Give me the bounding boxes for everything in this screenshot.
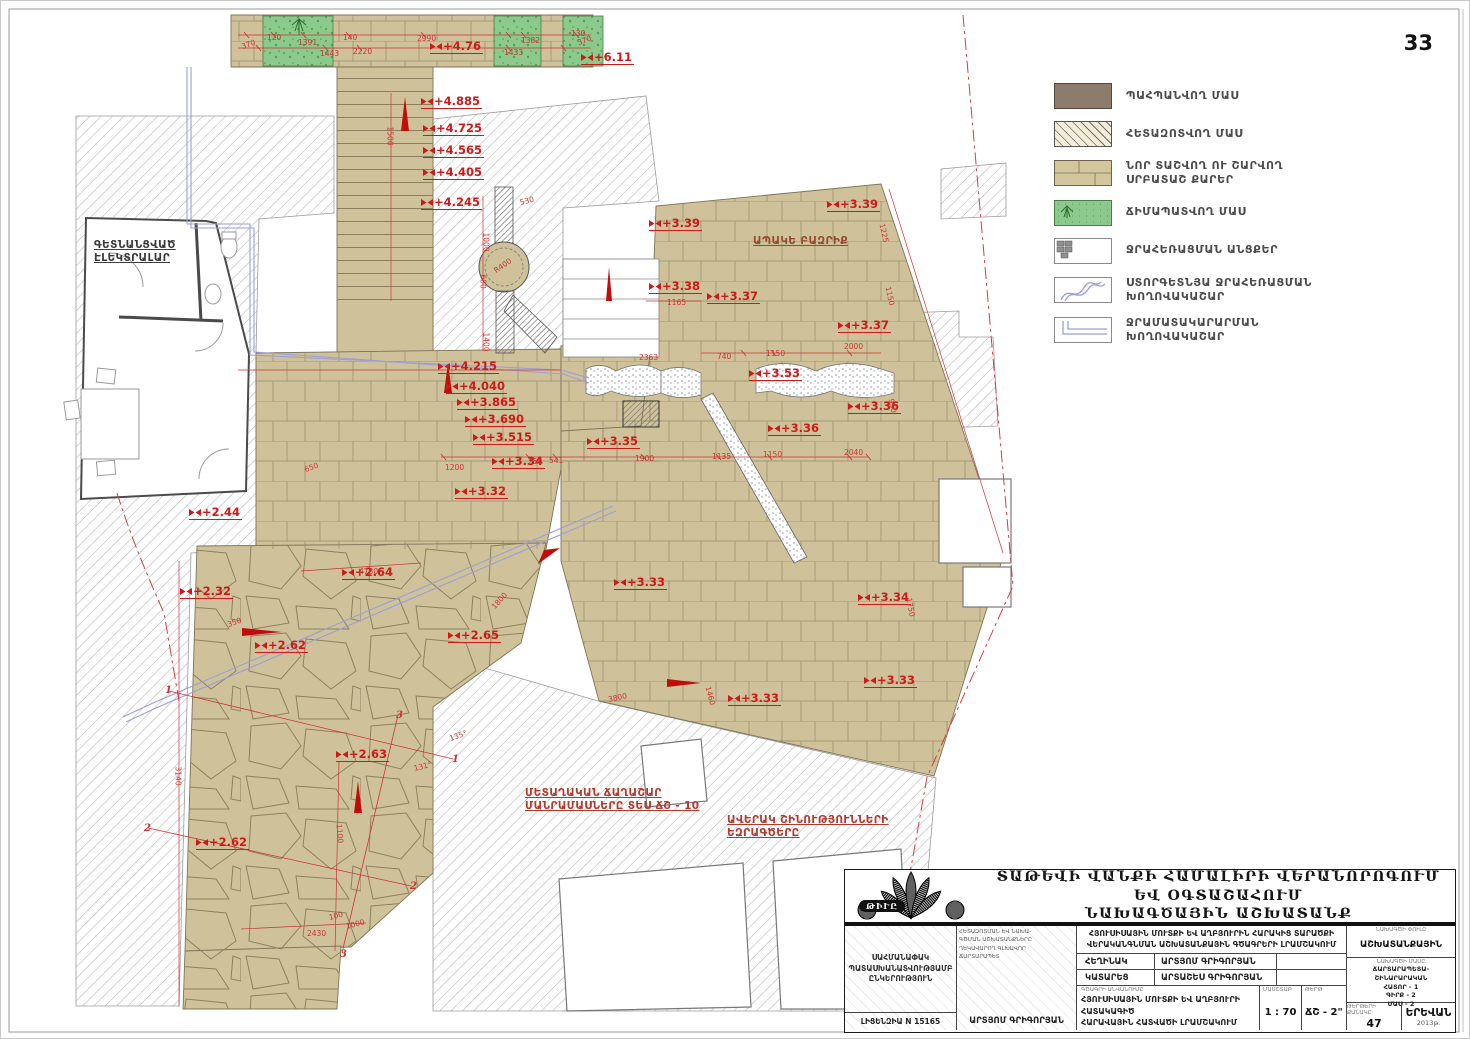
sheet-label: ԹԵՐԹ (1302, 986, 1346, 994)
legend-label: ՋՐԱՄԱՏԱԿԱՐԱՐՄԱՆ ԽՈՂՈՎԱԿԱՇԱՐ (1126, 316, 1259, 345)
legend-item-preserved-part: ՊԱՀՊԱՆՎՈՂ ՄԱՍ (1054, 83, 1384, 109)
logo-text: ԹԻՒԸ (859, 900, 905, 912)
chief-name: ԱՐՏՅՈՄ ԳՐԻԳՈՐՅԱՆ (959, 1016, 1074, 1028)
legend-item-underground-drainage-pipeline: ՍՏՈՐԳԵՏՆՅԱ ՋՐԱՀԵՌԱՑՄԱՆ ԽՈՂՈՎԱԿԱՇԱՐ (1054, 276, 1384, 305)
stairs-middle (563, 259, 659, 357)
sink-fixture (205, 284, 221, 304)
sheets-count: 47 (1366, 1016, 1381, 1030)
org-name: ՍԱՀՄԱՆԱՓԱԿ ՊԱՏԱՍԽԱՆԱՏՎՈՒԹՅԱՄԲ ԸՆԿԵՐՈՒԹՅՈ… (845, 926, 956, 1012)
performed-label: ԿԱՏԱՐԵՑ (1077, 970, 1155, 985)
sheet-code: ՃՇ - 2" (1302, 994, 1346, 1030)
chief-architect-cell: ՀԵՏԱԶՈՏՄԱՆ ԵՎ ՆԱԽԱ- ԳԾՄԱՆ ԱՇԽԱՏԱՆՔՆԵՐԸ Ղ… (957, 926, 1077, 1030)
chief-note: ՀԵՏԱԶՈՏՄԱՆ ԵՎ ՆԱԽԱ- ԳԾՄԱՆ ԱՇԽԱՏԱՆՔՆԵՐԸ Ղ… (959, 928, 1074, 961)
legend-label: ՍՏՈՐԳԵՏՆՅԱ ՋՐԱՀԵՌԱՑՄԱՆ ԽՈՂՈՎԱԿԱՇԱՐ (1126, 276, 1312, 305)
drainage-openings-swatch-icon (1054, 238, 1112, 264)
project-header: ՀՅՈՒՍԻՍԱՅԻՆ ՄՈՒՏՔԻ ԵՎ ԱՂԲՅՈՒՐԻՆ ՀԱՐԱԿԻՑ … (1077, 926, 1346, 954)
author-name: ԱՐՏՅՈՄ ԳՐԻԳՈՐՅԱՆ (1155, 954, 1277, 969)
scale-label: ՄԱՍՇՏԱԲ (1260, 986, 1301, 994)
legend-label: ՋՐԱՀԵՌԱՑՄԱՆ ԱՆՑՔԵՐ (1126, 243, 1278, 257)
license-number: ԼԻՑԵՆԶԻԱ N 15165 (845, 1012, 956, 1030)
table (81, 389, 139, 459)
drainage-opening (623, 401, 659, 427)
stage-value: ԱՇԽԱՏԱՆՔԱՅԻՆ (1360, 933, 1442, 956)
new-hewn-stones-swatch-icon (1054, 160, 1112, 186)
drawing-info-cell: ՀՅՈՒՍԻՍԱՅԻՆ ՄՈՒՏՔԻ ԵՎ ԱՂԲՅՈՒՐԻՆ ՀԱՐԱԿԻՑ … (1077, 926, 1347, 1030)
drawing-title: ՀՅՈՒՍԻՍԱՅԻՆ ՄՈՒՏՔԻ ԵՎ ԱՂԲՅՈՒՐԻ ՀԱՏԱԿԱԳԻԾ… (1081, 994, 1255, 1029)
legend-label: ՊԱՀՊԱՆՎՈՂ ՄԱՍ (1126, 89, 1239, 103)
scale-value: 1 : 70 (1260, 994, 1301, 1030)
org-cell: ՍԱՀՄԱՆԱՓԱԿ ՊԱՏԱՍԽԱՆԱՏՎՈՒԹՅԱՄԲ ԸՆԿԵՐՈՒԹՅՈ… (845, 926, 957, 1030)
performed-name: ԱՐՏԱՇԵՍ ԳՐԻԳՈՐՅԱՆ (1155, 970, 1277, 985)
drawing-title-label: ԳԾԱԳՐԻ ԱՆՎԱՆՈՒՄԸ (1081, 987, 1255, 993)
legend-item-water-supply-pipeline: ՋՐԱՄԱՏԱԿԱՐԱՐՄԱՆ ԽՈՂՈՎԱԿԱՇԱՐ (1054, 316, 1384, 345)
title-block: ԹԻՒԸ ՏԱԹԵՎԻ ՎԱՆՔԻ ՀԱՄԱԼԻՐԻ ՎԵՐԱՆՈՐՈԳՈՒՄ … (844, 869, 1456, 1033)
legend-item-new-hewn-stones: ՆՈՐ ՏԱՇՎՈՂ ՈՒ ՇԱՐՎՈՂ ՍՐԲԱՏԱՇ ՔԱՐԵՐ (1054, 159, 1384, 188)
legend-label: ՃԻՄԱՊԱՏՎՈՂ ՄԱՍ (1126, 205, 1246, 219)
legend-item-turfed-part: ՃԻՄԱՊԱՏՎՈՂ ՄԱՍ (1054, 200, 1384, 226)
stair-corridor-steps (337, 67, 433, 307)
legend-item-investigated-part: ՀԵՏԱԶՈՏՎՈՂ ՄԱՍ (1054, 121, 1384, 147)
sheets-count-label: ԹԵՐԹԵՐԻ ՔԱՆԱԿԸ (1347, 1004, 1401, 1016)
preserved-part-swatch-icon (1054, 83, 1112, 109)
signature-cell (1277, 954, 1346, 969)
water-supply-pipeline-swatch-icon (1054, 317, 1112, 343)
project-meta-cell: ՆԱԽԱԳԾԻ ՓՈՒԼԸ ԱՇԽԱՏԱՆՔԱՅԻՆ ՆԱԽԱԳԾԻ ՄԱՍԸ … (1347, 926, 1455, 1030)
legend-item-drainage-openings: ՋՐԱՀԵՌԱՑՄԱՆ ԱՆՑՔԵՐ (1054, 238, 1384, 264)
city-name: ԵՐԵՎԱՆ (1406, 1007, 1452, 1019)
turfed-part-swatch-icon (1054, 200, 1112, 226)
drawing-sheet: 33 ՊԱՀՊԱՆՎՈՂ ՄԱՍՀԵՏԱԶՈՏՎՈՂ ՄԱՍՆՈՐ ՏԱՇՎՈՂ… (0, 0, 1470, 1039)
project-title: ՏԱԹԵՎԻ ՎԱՆՔԻ ՀԱՄԱԼԻՐԻ ՎԵՐԱՆՈՐՈԳՈՒՄ ԵՎ ՕԳ… (982, 870, 1455, 922)
underground-drainage-pipeline-swatch-icon (1054, 277, 1112, 303)
company-logo: ԹԻՒԸ (845, 870, 982, 922)
author-label: ՀԵՂԻՆԱԿ (1077, 954, 1155, 969)
building-interior (64, 218, 249, 499)
legend: ՊԱՀՊԱՆՎՈՂ ՄԱՍՀԵՏԱԶՈՏՎՈՂ ՄԱՍՆՈՐ ՏԱՇՎՈՂ ՈՒ… (1054, 83, 1384, 345)
year: 2013թ. (1417, 1019, 1440, 1027)
signature-cell (1277, 970, 1346, 985)
legend-label: ՆՈՐ ՏԱՇՎՈՂ ՈՒ ՇԱՐՎՈՂ ՍՐԲԱՏԱՇ ՔԱՐԵՐ (1126, 159, 1283, 188)
sheet-number: 33 (1404, 31, 1433, 55)
legend-label: ՀԵՏԱԶՈՏՎՈՂ ՄԱՍ (1126, 127, 1243, 141)
investigated-part-swatch-icon (1054, 121, 1112, 147)
